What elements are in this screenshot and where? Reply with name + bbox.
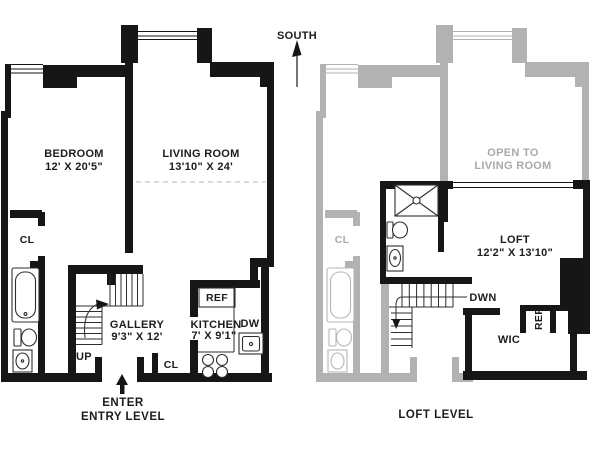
wic-label: WIC [498, 334, 520, 346]
dwn-label: DWN [469, 292, 496, 304]
entry-arrow-icon [116, 374, 128, 394]
dishwasher-icon [239, 333, 263, 354]
gallery-dims: 9'3" X 12' [111, 331, 162, 343]
compass-arrow-icon [292, 40, 302, 57]
enter-caption: ENTER [102, 397, 144, 409]
loft-ref-label: REF [533, 308, 545, 330]
loft-level-caption: LOFT LEVEL [398, 409, 473, 421]
ref-label: REF [206, 292, 228, 304]
ghost-toilet-icon [329, 329, 352, 346]
loft-dims: 12'2" X 13'10" [477, 247, 553, 259]
ghost-closet-label: CL [335, 234, 350, 246]
open-to-label-line1: OPEN TO [487, 147, 539, 159]
entry-level-plan: BEDROOM 12' X 20'5" LIVING ROOM 13'10" X… [1, 25, 274, 423]
loft-ghost-walls [316, 25, 589, 382]
up-label: UP [76, 351, 92, 363]
staircase-down [389, 284, 467, 348]
ghost-sink-icon [328, 350, 347, 372]
closet-label: CL [20, 234, 35, 246]
loft-toilet-icon [387, 222, 408, 238]
compass: SOUTH [277, 30, 317, 87]
living-room-dims: 13'10" X 24' [169, 161, 233, 173]
bathtub-icon [12, 268, 39, 322]
entry-level-caption: ENTRY LEVEL [81, 411, 165, 423]
compass-label: SOUTH [277, 30, 317, 42]
loft-level-plan: OPEN TO LIVING ROOM CL LOFT 12'2" X 13'1… [316, 25, 590, 421]
floorplan-canvas: SOUTH [0, 0, 600, 465]
loft-sink-icon [387, 246, 403, 271]
open-to-label-line2: LIVING ROOM [474, 160, 551, 172]
bedroom-label: BEDROOM [44, 148, 104, 160]
entry-closet-label: CL [164, 359, 179, 371]
toilet-icon [14, 329, 37, 346]
loft-railing-icon [450, 183, 573, 188]
bedroom-dims: 12' X 20'5" [45, 161, 103, 173]
sink-icon [13, 350, 32, 372]
gallery-label: GALLERY [110, 319, 165, 331]
loft-level-labels: LOFT 12'2" X 13'10" DWN WIC REF LOFT LEV… [398, 234, 553, 421]
kitchen-dims: 7' X 9'1" [192, 330, 237, 342]
loft-label: LOFT [500, 234, 530, 246]
shower-icon [395, 185, 438, 216]
down-arrow-icon [392, 319, 401, 329]
ghost-bathtub-icon [327, 268, 354, 322]
living-room-label: LIVING ROOM [162, 148, 239, 160]
dw-label: DW [241, 318, 260, 330]
